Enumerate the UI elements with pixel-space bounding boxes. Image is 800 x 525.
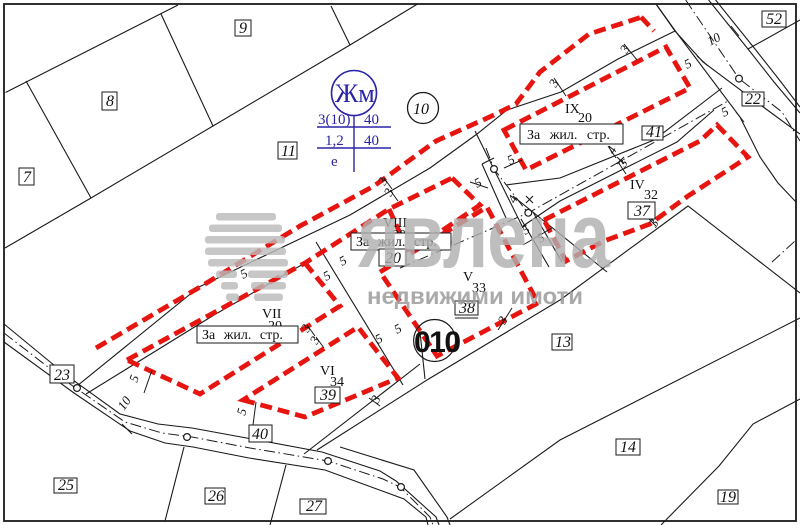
svg-text:13: 13 [555,334,571,351]
svg-text:40: 40 [364,133,379,149]
svg-text:8: 8 [106,93,114,110]
svg-text:10: 10 [413,101,429,118]
svg-text:е: е [331,154,338,170]
svg-text:9: 9 [239,20,247,37]
svg-text:11: 11 [281,143,296,160]
svg-text:52: 52 [766,11,782,28]
svg-text:недвижими имоти: недвижими имоти [367,283,583,309]
svg-text:40: 40 [364,112,379,128]
svg-text:32: 32 [644,188,658,203]
svg-text:39: 39 [319,387,336,404]
svg-text:явлена: явлена [357,185,610,287]
svg-text:IV: IV [630,178,645,193]
svg-text:40: 40 [252,426,268,443]
svg-text:За жил. стр.: За жил. стр. [202,328,283,343]
svg-text:25: 25 [58,477,74,494]
svg-text:010: 010 [414,326,460,359]
svg-text:23: 23 [54,367,70,384]
svg-text:За жил. стр.: За жил. стр. [527,128,610,143]
svg-text:37: 37 [633,203,651,220]
svg-text:41: 41 [646,124,662,141]
svg-text:1,2: 1,2 [325,133,344,149]
svg-text:3(10): 3(10) [318,112,351,128]
svg-text:22: 22 [745,91,761,108]
svg-text:26: 26 [208,488,224,505]
svg-text:7: 7 [23,169,32,186]
svg-text:19: 19 [720,489,736,506]
svg-text:Жм: Жм [335,79,375,108]
svg-text:27: 27 [306,498,323,515]
svg-text:14: 14 [620,439,636,456]
